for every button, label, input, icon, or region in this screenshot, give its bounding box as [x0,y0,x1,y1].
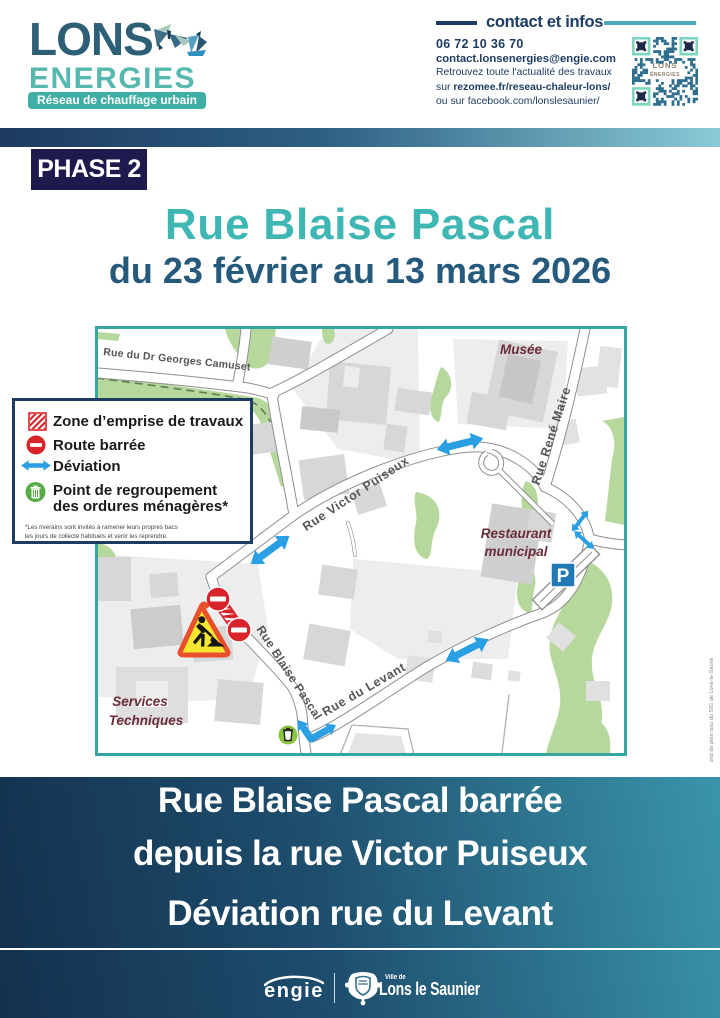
svg-text:Restaurant: Restaurant [481,526,552,541]
svg-text:des ordures ménagères*: des ordures ménagères* [53,498,228,515]
svg-text:Services: Services [112,694,168,709]
svg-text:Techniques: Techniques [109,713,184,728]
svg-text:P: P [557,566,570,587]
svg-text:ÉNERGIES: ÉNERGIES [650,70,680,78]
svg-text:Musée: Musée [500,342,543,357]
svg-text:municipal: municipal [484,544,547,559]
svg-text:Fond de plan issu du SIG de L: Fond de plan issu du SIG de Lons-le-Saun… [709,658,715,762]
svg-text:*Les riverains sont invités à: *Les riverains sont invités à ramener le… [25,524,178,531]
svg-text:Zone d’emprise de travaux: Zone d’emprise de travaux [53,413,244,430]
svg-text:Rue du Dr Georges Camuset: Rue du Dr Georges Camuset [103,346,252,373]
svg-text:Route barrée: Route barrée [53,437,146,454]
svg-text:Point de regroupement: Point de regroupement [53,482,217,499]
svg-text:engie: engie [264,980,324,1002]
svg-text:Déviation: Déviation [53,458,121,475]
svg-text:les jours de collecte habituel: les jours de collecte habituels et venir… [25,533,168,540]
svg-text:LONS: LONS [653,61,678,70]
